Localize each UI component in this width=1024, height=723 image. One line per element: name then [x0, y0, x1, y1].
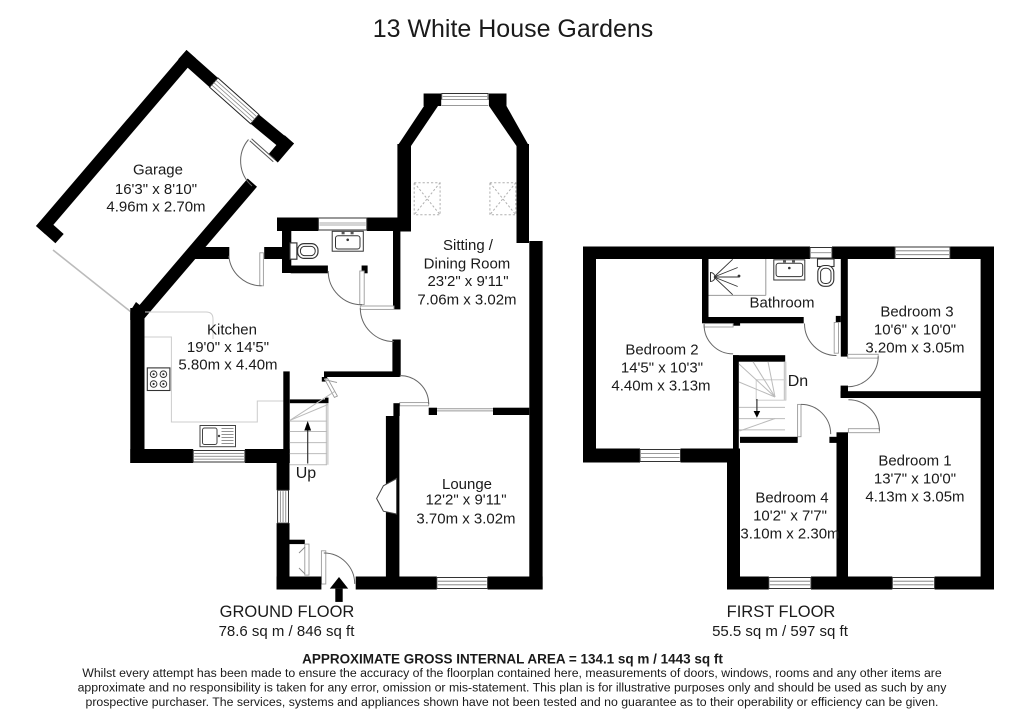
svg-text:5.80m x 4.40m: 5.80m x 4.40m [178, 356, 277, 373]
svg-text:7.06m x 3.02m: 7.06m x 3.02m [417, 291, 516, 308]
svg-text:12'2" x 9'11": 12'2" x 9'11" [425, 491, 506, 508]
svg-text:4.96m x 2.70m: 4.96m x 2.70m [106, 198, 205, 215]
svg-text:23'2" x 9'11": 23'2" x 9'11" [427, 273, 508, 290]
svg-text:4.13m x 3.05m: 4.13m x 3.05m [865, 489, 964, 506]
svg-text:Bathroom: Bathroom [750, 294, 815, 311]
svg-text:Bedroom 4: Bedroom 4 [755, 490, 828, 507]
svg-text:prospective purchaser. The ser: prospective purchaser. The services, sys… [86, 695, 939, 709]
svg-text:3.10m x 2.30m: 3.10m x 2.30m [740, 525, 839, 542]
svg-text:Dining Room: Dining Room [424, 255, 511, 272]
svg-text:Bedroom 1: Bedroom 1 [878, 452, 951, 469]
svg-text:FIRST FLOOR: FIRST FLOOR [727, 603, 836, 621]
svg-text:GROUND FLOOR: GROUND FLOOR [220, 603, 355, 621]
svg-text:10'2" x 7'7": 10'2" x 7'7" [753, 508, 827, 525]
svg-text:Up: Up [296, 465, 317, 482]
svg-text:Bedroom 3: Bedroom 3 [880, 304, 953, 321]
svg-text:14'5" x 10'3": 14'5" x 10'3" [621, 359, 703, 376]
svg-text:Bedroom 2: Bedroom 2 [625, 341, 698, 358]
svg-text:Sitting /: Sitting / [443, 237, 494, 254]
svg-text:10'6" x 10'0": 10'6" x 10'0" [874, 322, 956, 339]
svg-text:55.5 sq m / 597 sq ft: 55.5 sq m / 597 sq ft [712, 623, 849, 640]
svg-text:Garage: Garage [133, 161, 183, 178]
svg-text:Dn: Dn [788, 373, 808, 390]
svg-text:4.40m x 3.13m: 4.40m x 3.13m [611, 377, 710, 394]
svg-text:78.6 sq m / 846 sq ft: 78.6 sq m / 846 sq ft [219, 623, 356, 640]
svg-text:Lounge: Lounge [442, 476, 492, 493]
svg-text:16'3" x 8'10": 16'3" x 8'10" [115, 181, 197, 198]
svg-text:19'0" x 14'5": 19'0" x 14'5" [187, 339, 269, 356]
svg-text:approximate and no responsibil: approximate and no responsibility is tak… [78, 680, 948, 694]
svg-text:Whilst every attempt has been: Whilst every attempt has been made to en… [82, 666, 942, 680]
svg-text:13'7" x 10'0": 13'7" x 10'0" [874, 470, 956, 487]
svg-text:13 White House Gardens: 13 White House Gardens [373, 15, 654, 43]
svg-text:APPROXIMATE GROSS INTERNAL ARE: APPROXIMATE GROSS INTERNAL AREA = 134.1 … [302, 651, 723, 666]
svg-text:3.70m x 3.02m: 3.70m x 3.02m [416, 510, 515, 527]
svg-text:3.20m x 3.05m: 3.20m x 3.05m [865, 339, 964, 356]
svg-text:Kitchen: Kitchen [207, 321, 257, 338]
